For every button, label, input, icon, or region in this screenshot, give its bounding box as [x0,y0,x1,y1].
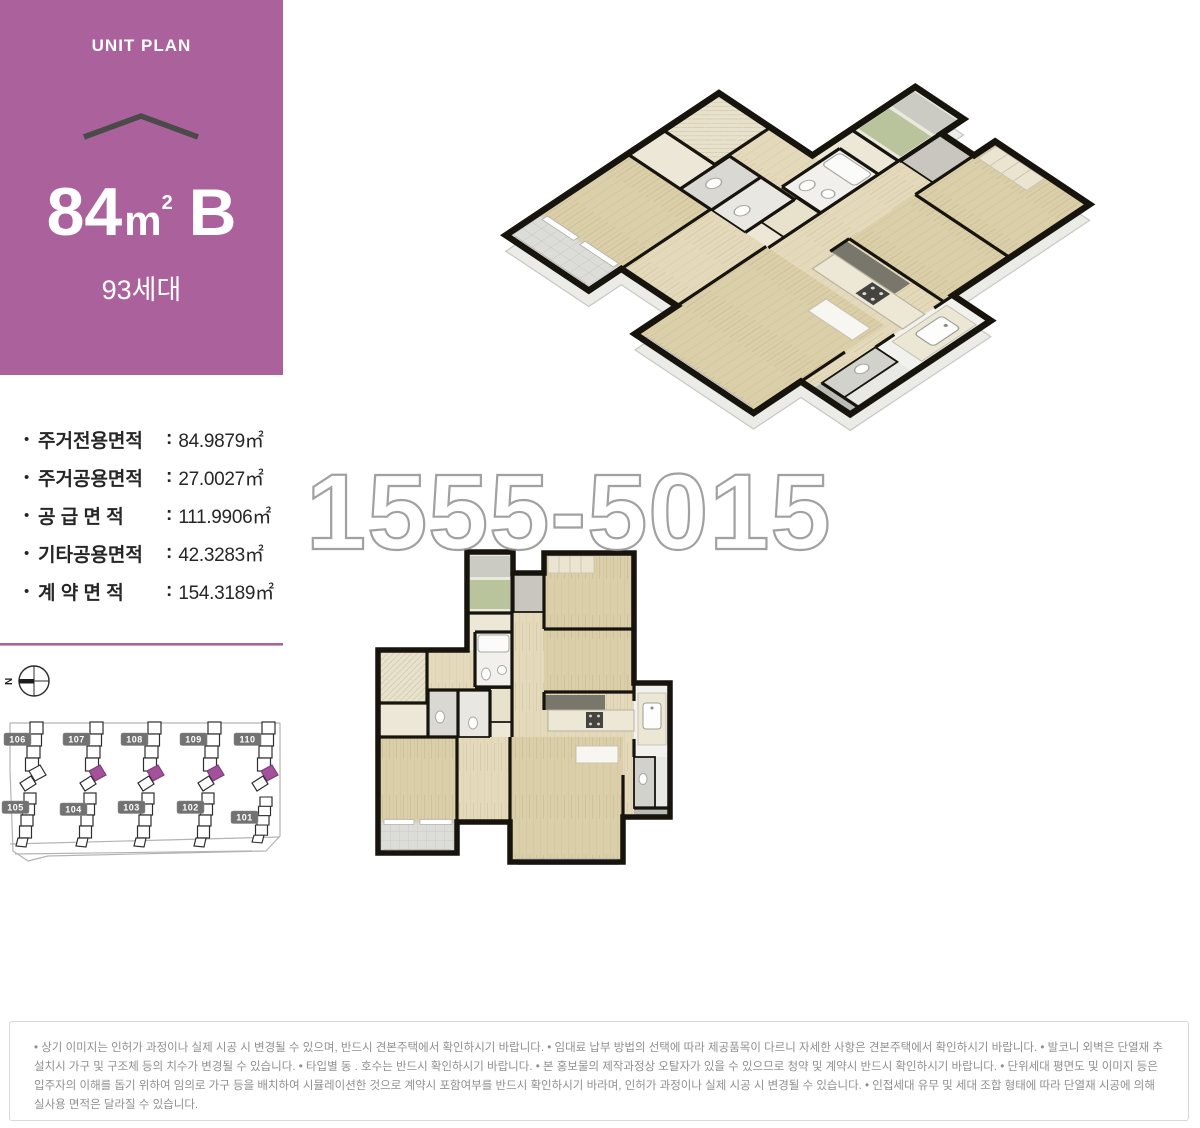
svg-text:106: 106 [9,734,26,744]
unit-area-number: 84 [47,174,123,250]
badge-105: 105 [2,801,29,814]
area-row: • 계 약 면 적 : 154.3189㎡ [24,572,314,610]
building-108 [138,722,164,791]
north-arrow-icon [19,679,34,684]
svg-text:109: 109 [185,734,202,744]
panel-eyebrow: UNIT PLAN [0,36,283,56]
bullet-icon: • [24,507,38,524]
unit-panel: UNIT PLAN 84m2B 93세대 [0,0,283,375]
phone-watermark: 1555-5015 [306,458,926,566]
svg-text:107: 107 [68,734,85,744]
bullet-icon: • [24,583,38,600]
area-spec-list: • 주거전용면적 : 84.9879㎡ • 주거공용면적 : 27.0027㎡ … [24,420,314,610]
area-row: • 공 급 면 적 : 111.9906㎡ [24,496,314,534]
unit-area-unit: m [124,197,161,244]
svg-text:103: 103 [123,802,140,812]
svg-text:101: 101 [236,812,253,822]
households-count: 93세대 [0,268,283,307]
bullet-icon: • [24,431,38,448]
building-106 [20,722,46,791]
badge-103: 103 [118,801,145,814]
disclaimer-line: 입주자의 이해를 돕기 위하여 임의로 가구 등을 배치하여 시뮬레이션한 것으… [34,1077,1164,1096]
area-row: • 주거전용면적 : 84.9879㎡ [24,420,314,458]
badge-108: 108 [121,733,148,746]
site-plan: N [2,666,280,861]
disclaimer-line: 실사용 면적은 달라질 수 있습니다. [34,1096,1164,1115]
badge-101: 101 [231,811,258,824]
unit-type-letter: B [189,175,237,249]
unit-plan-page: { "unit_panel": { "eyebrow": "UNIT PLAN"… [0,0,1200,1128]
svg-text:108: 108 [126,734,143,744]
area-row: • 기타공용면적 : 42.3283㎡ [24,534,314,572]
badge-109: 109 [180,733,207,746]
svg-text:105: 105 [7,802,24,812]
building-104 [76,793,96,847]
compass: N [4,666,49,696]
floorplan-3d [494,25,1130,462]
badge-110: 110 [234,733,261,746]
disclaimer-line: • 상기 이미지는 인허가 과정이나 실제 시공 시 변경될 수 있으며, 반드… [34,1039,1164,1058]
bullet-icon: • [24,469,38,486]
badge-102: 102 [177,801,204,814]
badge-106: 106 [4,733,31,746]
badge-104: 104 [60,803,87,816]
svg-text:110: 110 [239,734,255,744]
floorplan-2d [378,552,672,865]
roof-icon [81,110,201,142]
svg-text:104: 104 [65,804,82,814]
bullet-icon: • [24,545,38,562]
building-107 [80,722,106,791]
area-row: • 주거공용면적 : 27.0027㎡ [24,458,314,496]
svg-text:102: 102 [182,802,199,812]
footer-disclaimer: • 상기 이미지는 인허가 과정이나 실제 시공 시 변경될 수 있으며, 반드… [9,1021,1189,1121]
disclaimer-line: 설치시 가구 및 구조체 등의 치수가 변경될 수 있습니다. • 타입별 동 … [34,1058,1164,1077]
divider-line [0,643,283,646]
badge-107: 107 [63,733,90,746]
building-109 [198,722,224,791]
unit-title: 84m2B [0,178,283,246]
building-110 [252,722,278,791]
compass-label: N [4,678,15,685]
